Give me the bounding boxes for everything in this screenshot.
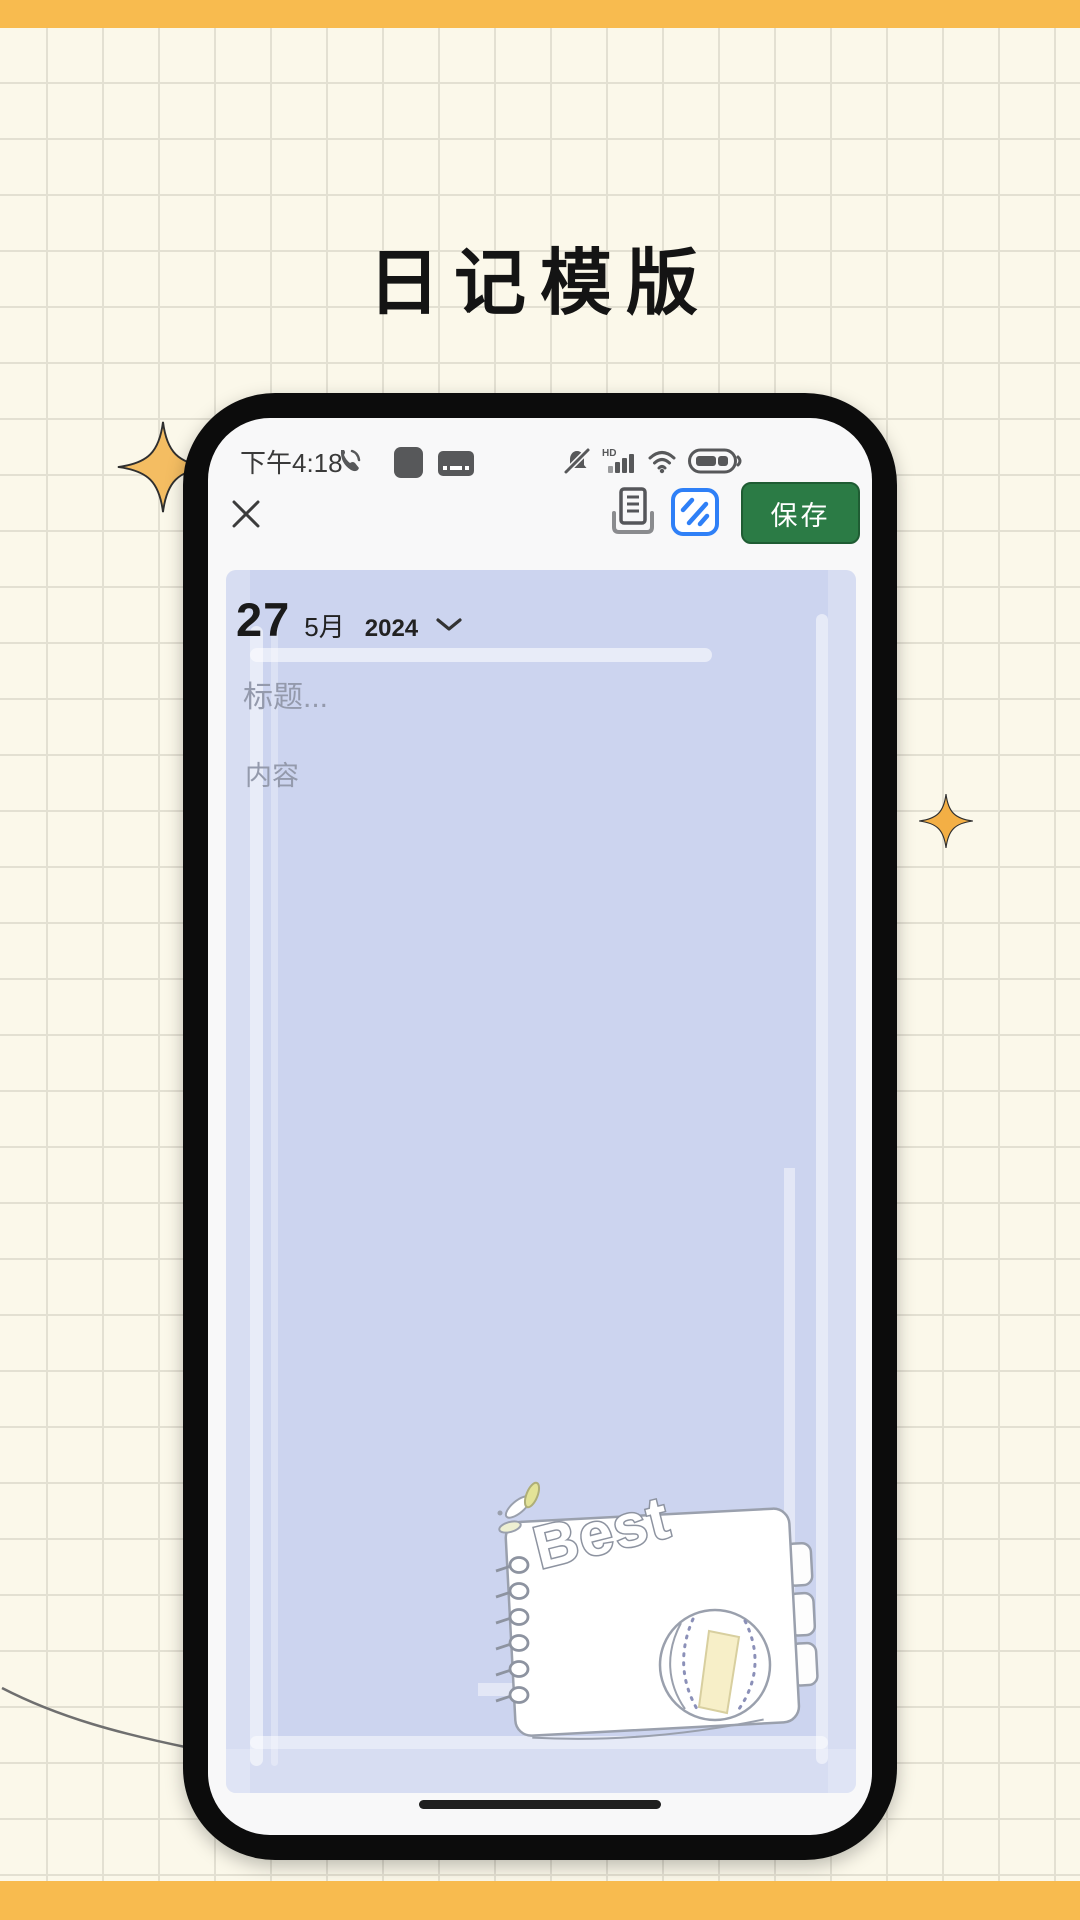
frame-line-top	[250, 648, 712, 662]
sparkle-icon	[918, 792, 974, 850]
chevron-down-icon	[436, 618, 462, 632]
template-button[interactable]	[671, 488, 719, 536]
bottom-accent-bar	[0, 1881, 1080, 1920]
baseball-doodle	[660, 1610, 770, 1720]
wifi-icon	[647, 448, 677, 474]
status-time: 下午4:18	[240, 443, 343, 480]
phone-screen: 下午4:18 HD	[208, 418, 872, 1835]
svg-text:HD: HD	[602, 448, 616, 459]
mute-icon	[563, 447, 591, 475]
panel-margin-bottom	[226, 1749, 856, 1793]
signal-icon: HD	[602, 447, 636, 475]
top-accent-bar	[0, 0, 1080, 28]
print-icon	[614, 489, 652, 532]
date-selector[interactable]: 27 5月 2024	[236, 592, 462, 647]
call-icon	[336, 447, 362, 475]
diary-panel: 27 5月 2024 标题... 内容	[226, 570, 856, 1793]
phone-frame: 下午4:18 HD	[183, 393, 897, 1860]
date-year: 2024	[365, 615, 418, 643]
template-icon	[679, 496, 711, 528]
frame-line-left-inner	[271, 626, 278, 1766]
save-button-label: 保存	[771, 494, 831, 533]
battery-icon	[688, 447, 742, 475]
poster-background: 日记模版 下午4:18	[0, 0, 1080, 1920]
date-month: 5月	[304, 607, 344, 644]
keyboard-icon	[438, 451, 474, 476]
panel-margin-right	[828, 570, 856, 1793]
page-title: 日记模版	[0, 224, 1080, 329]
content-input[interactable]: 内容	[245, 754, 299, 793]
close-button[interactable]	[224, 492, 268, 536]
status-right-icons: HD	[563, 447, 742, 475]
title-input[interactable]: 标题...	[243, 672, 328, 716]
date-day: 27	[236, 592, 290, 647]
app-square-icon	[394, 447, 423, 478]
save-button[interactable]: 保存	[741, 482, 860, 544]
decorative-curve	[0, 1672, 200, 1762]
notebook-sticker: Best	[490, 1465, 820, 1755]
home-indicator[interactable]	[419, 1800, 661, 1809]
frame-line-left	[250, 626, 263, 1766]
close-icon	[231, 499, 261, 529]
print-button[interactable]	[611, 487, 655, 535]
